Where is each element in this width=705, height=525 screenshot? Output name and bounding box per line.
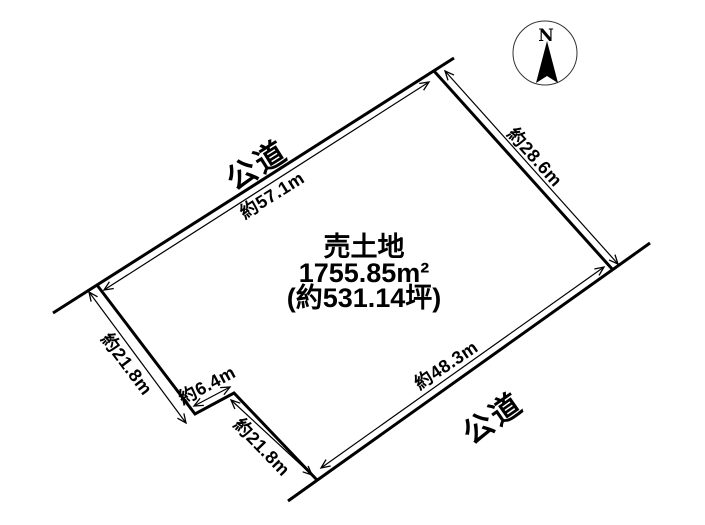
dimension-label-notch-upper: 約6.4m [175, 361, 239, 408]
dimension-label-left-edge: 約21.8m [97, 329, 157, 399]
road-label-bottom: 公道 [457, 386, 530, 451]
dimension-label-bottom-edge: 約48.3m [410, 336, 481, 394]
land-plot-diagram: 約57.1m 約28.6m 約48.3m 約21.8m 約6.4m 約21.8m… [0, 0, 705, 525]
plot-right-edge [434, 71, 613, 270]
plot-area-tsubo: (約531.14坪) [287, 282, 442, 313]
dimension-line-left-edge [89, 292, 186, 423]
compass-north-label: N [538, 26, 554, 46]
compass: N [513, 21, 577, 85]
plot-drawing: 約57.1m 約28.6m 約48.3m 約21.8m 約6.4m 約21.8m… [0, 0, 705, 525]
plot-info-block: 売土地 1755.85m² (約531.14坪) [287, 232, 442, 313]
